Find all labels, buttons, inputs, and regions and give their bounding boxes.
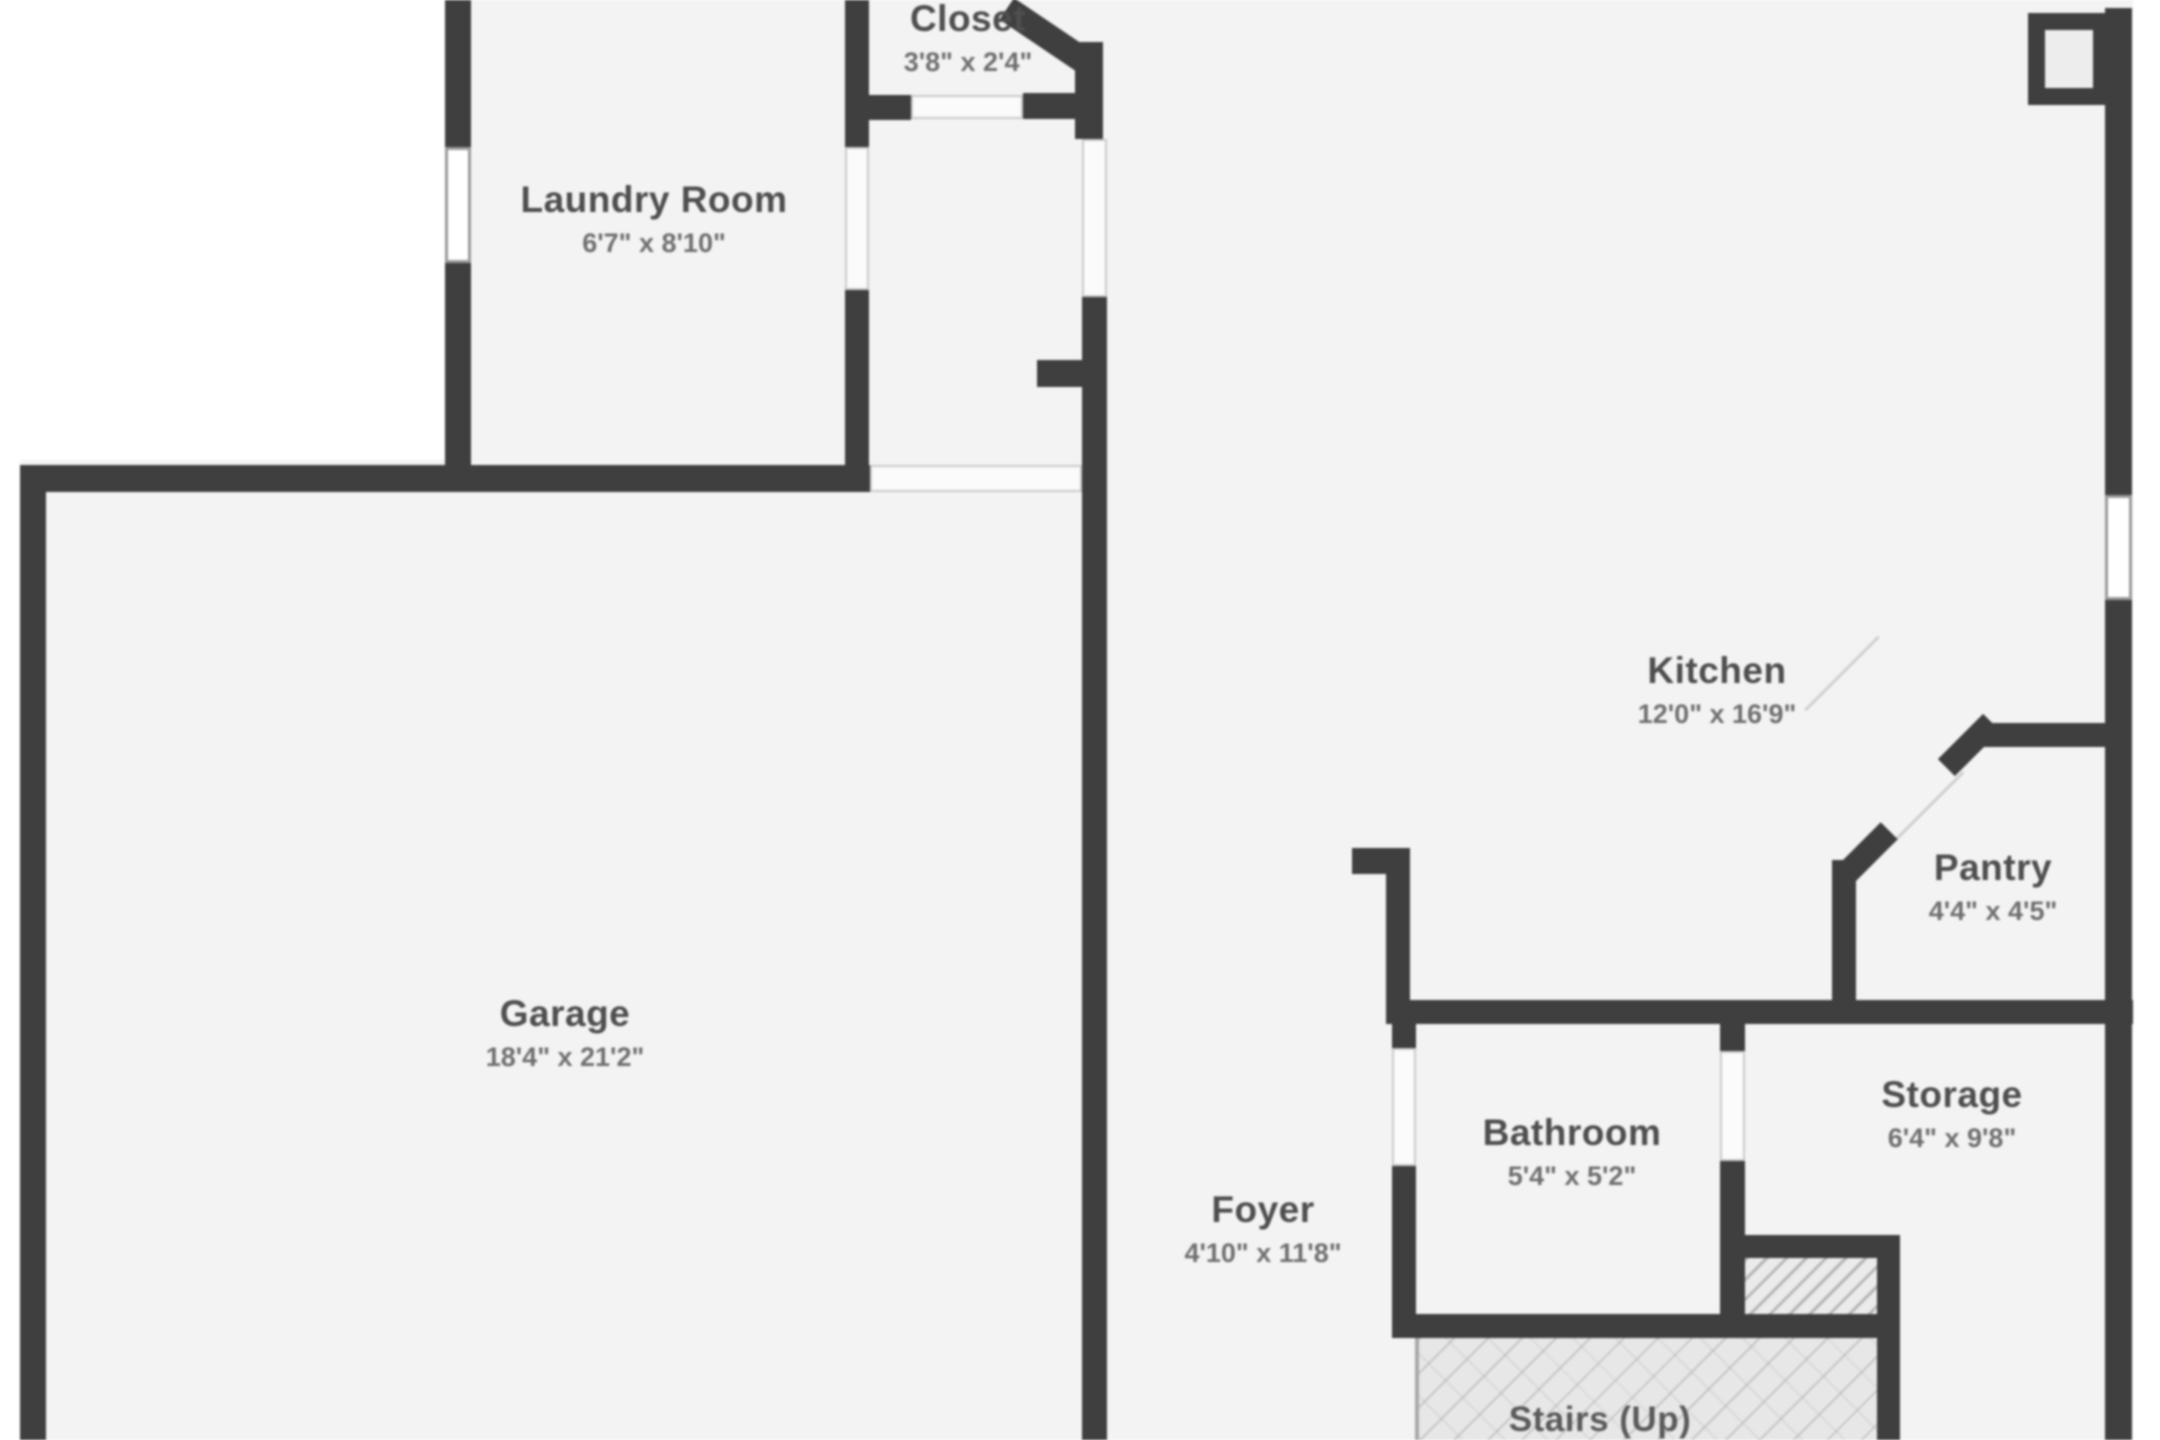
room-dims-kitchen: 12'0" x 16'9" — [1638, 697, 1797, 731]
room-label-storage: Storage 6'4" x 9'8" — [1881, 1073, 2022, 1155]
wall-hall-door-jamb — [1037, 360, 1082, 387]
room-name-storage: Storage — [1881, 1073, 2022, 1117]
door-opening-closet — [911, 95, 1023, 119]
room-dims-foyer: 4'10" x 11'8" — [1184, 1236, 1341, 1270]
room-dims-laundry: 6'7" x 8'10" — [520, 226, 787, 260]
wall-laundry-right-lower — [845, 290, 869, 465]
room-label-closet: Closet 3'8" x 2'4" — [904, 0, 1033, 79]
wall-pantry-left — [1832, 860, 1856, 1002]
fireplace-box — [2028, 13, 2110, 105]
wall-laundry-left-lower — [445, 263, 471, 465]
room-dims-pantry: 4'4" x 4'5" — [1929, 894, 2058, 928]
wall-kitchen-foyer-divider-cap — [1352, 848, 1386, 874]
wall-pantry-top — [1978, 723, 2105, 747]
wall-laundry-left-upper — [445, 0, 471, 147]
wall-kitchen-foyer-divider — [1386, 848, 1410, 1002]
room-dims-closet: 3'8" x 2'4" — [904, 45, 1033, 79]
room-name-stairs: Stairs (Up) — [1509, 1398, 1691, 1440]
room-label-laundry: Laundry Room 6'7" x 8'10" — [520, 178, 787, 260]
door-opening-bathroom — [1392, 1048, 1416, 1166]
room-name-pantry: Pantry — [1929, 846, 2058, 890]
wall-bathroom-left-lower — [1392, 1166, 1416, 1338]
room-name-closet: Closet — [904, 0, 1033, 41]
window-kitchen-right — [2105, 495, 2132, 600]
wall-closet-left — [845, 0, 869, 147]
window-laundry — [445, 147, 471, 263]
wall-bathroom-left-upper — [1392, 1024, 1416, 1048]
wall-bathroom-bottom — [1392, 1314, 1900, 1338]
wall-closet-bottom-left — [869, 95, 911, 120]
room-label-bathroom: Bathroom 5'4" x 5'2" — [1483, 1111, 1662, 1193]
room-dims-storage: 6'4" x 9'8" — [1881, 1121, 2022, 1155]
wall-kitchen-bottom — [1386, 1000, 2133, 1024]
room-name-kitchen: Kitchen — [1638, 649, 1797, 693]
wall-closet-bottom-right — [1023, 93, 1077, 119]
room-label-garage: Garage 18'4" x 21'2" — [486, 992, 645, 1074]
door-opening-garage-entry — [870, 465, 1082, 492]
door-opening-laundry — [845, 147, 869, 290]
room-name-bathroom: Bathroom — [1483, 1111, 1662, 1155]
wall-garage-left — [20, 465, 46, 1440]
room-label-foyer: Foyer 4'10" x 11'8" — [1184, 1188, 1341, 1270]
room-name-laundry: Laundry Room — [520, 178, 787, 222]
stairs-landing-hatch — [1745, 1258, 1877, 1314]
room-dims-garage: 18'4" x 21'2" — [486, 1040, 645, 1074]
room-label-kitchen: Kitchen 12'0" x 16'9" — [1638, 649, 1797, 731]
floor-plan: Closet 3'8" x 2'4" Laundry Room 6'7" x 8… — [0, 0, 2160, 1440]
room-name-garage: Garage — [486, 992, 645, 1036]
floor-fill-garage-left — [20, 460, 445, 1440]
wall-stairs-right — [1877, 1235, 1900, 1440]
room-dims-bathroom: 5'4" x 5'2" — [1483, 1159, 1662, 1193]
wall-garage-top — [20, 465, 870, 492]
floor-plan-drawing: Closet 3'8" x 2'4" Laundry Room 6'7" x 8… — [0, 0, 2160, 1440]
room-label-pantry: Pantry 4'4" x 4'5" — [1929, 846, 2058, 928]
door-opening-storage — [1720, 1051, 1745, 1161]
wall-foyer-left — [1082, 297, 1107, 1440]
opening-hall-to-kitchen — [1082, 139, 1107, 297]
wall-storage-divider-lower — [1720, 1161, 1745, 1316]
room-name-foyer: Foyer — [1184, 1188, 1341, 1232]
wall-storage-divider-upper — [1720, 1024, 1745, 1051]
room-label-stairs: Stairs (Up) — [1509, 1398, 1691, 1440]
